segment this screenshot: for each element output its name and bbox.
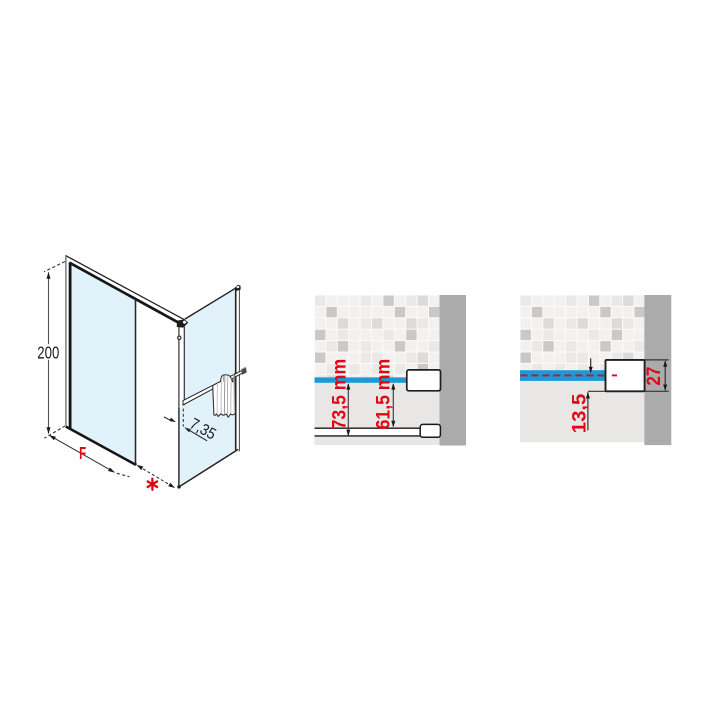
svg-text:200: 200 (37, 342, 59, 362)
svg-text:27: 27 (644, 367, 665, 386)
svg-text:73,5 mm: 73,5 mm (329, 359, 350, 430)
svg-text:61,5 mm: 61,5 mm (374, 359, 395, 430)
svg-text:F: F (79, 443, 86, 463)
svg-text:13,5: 13,5 (569, 393, 590, 433)
